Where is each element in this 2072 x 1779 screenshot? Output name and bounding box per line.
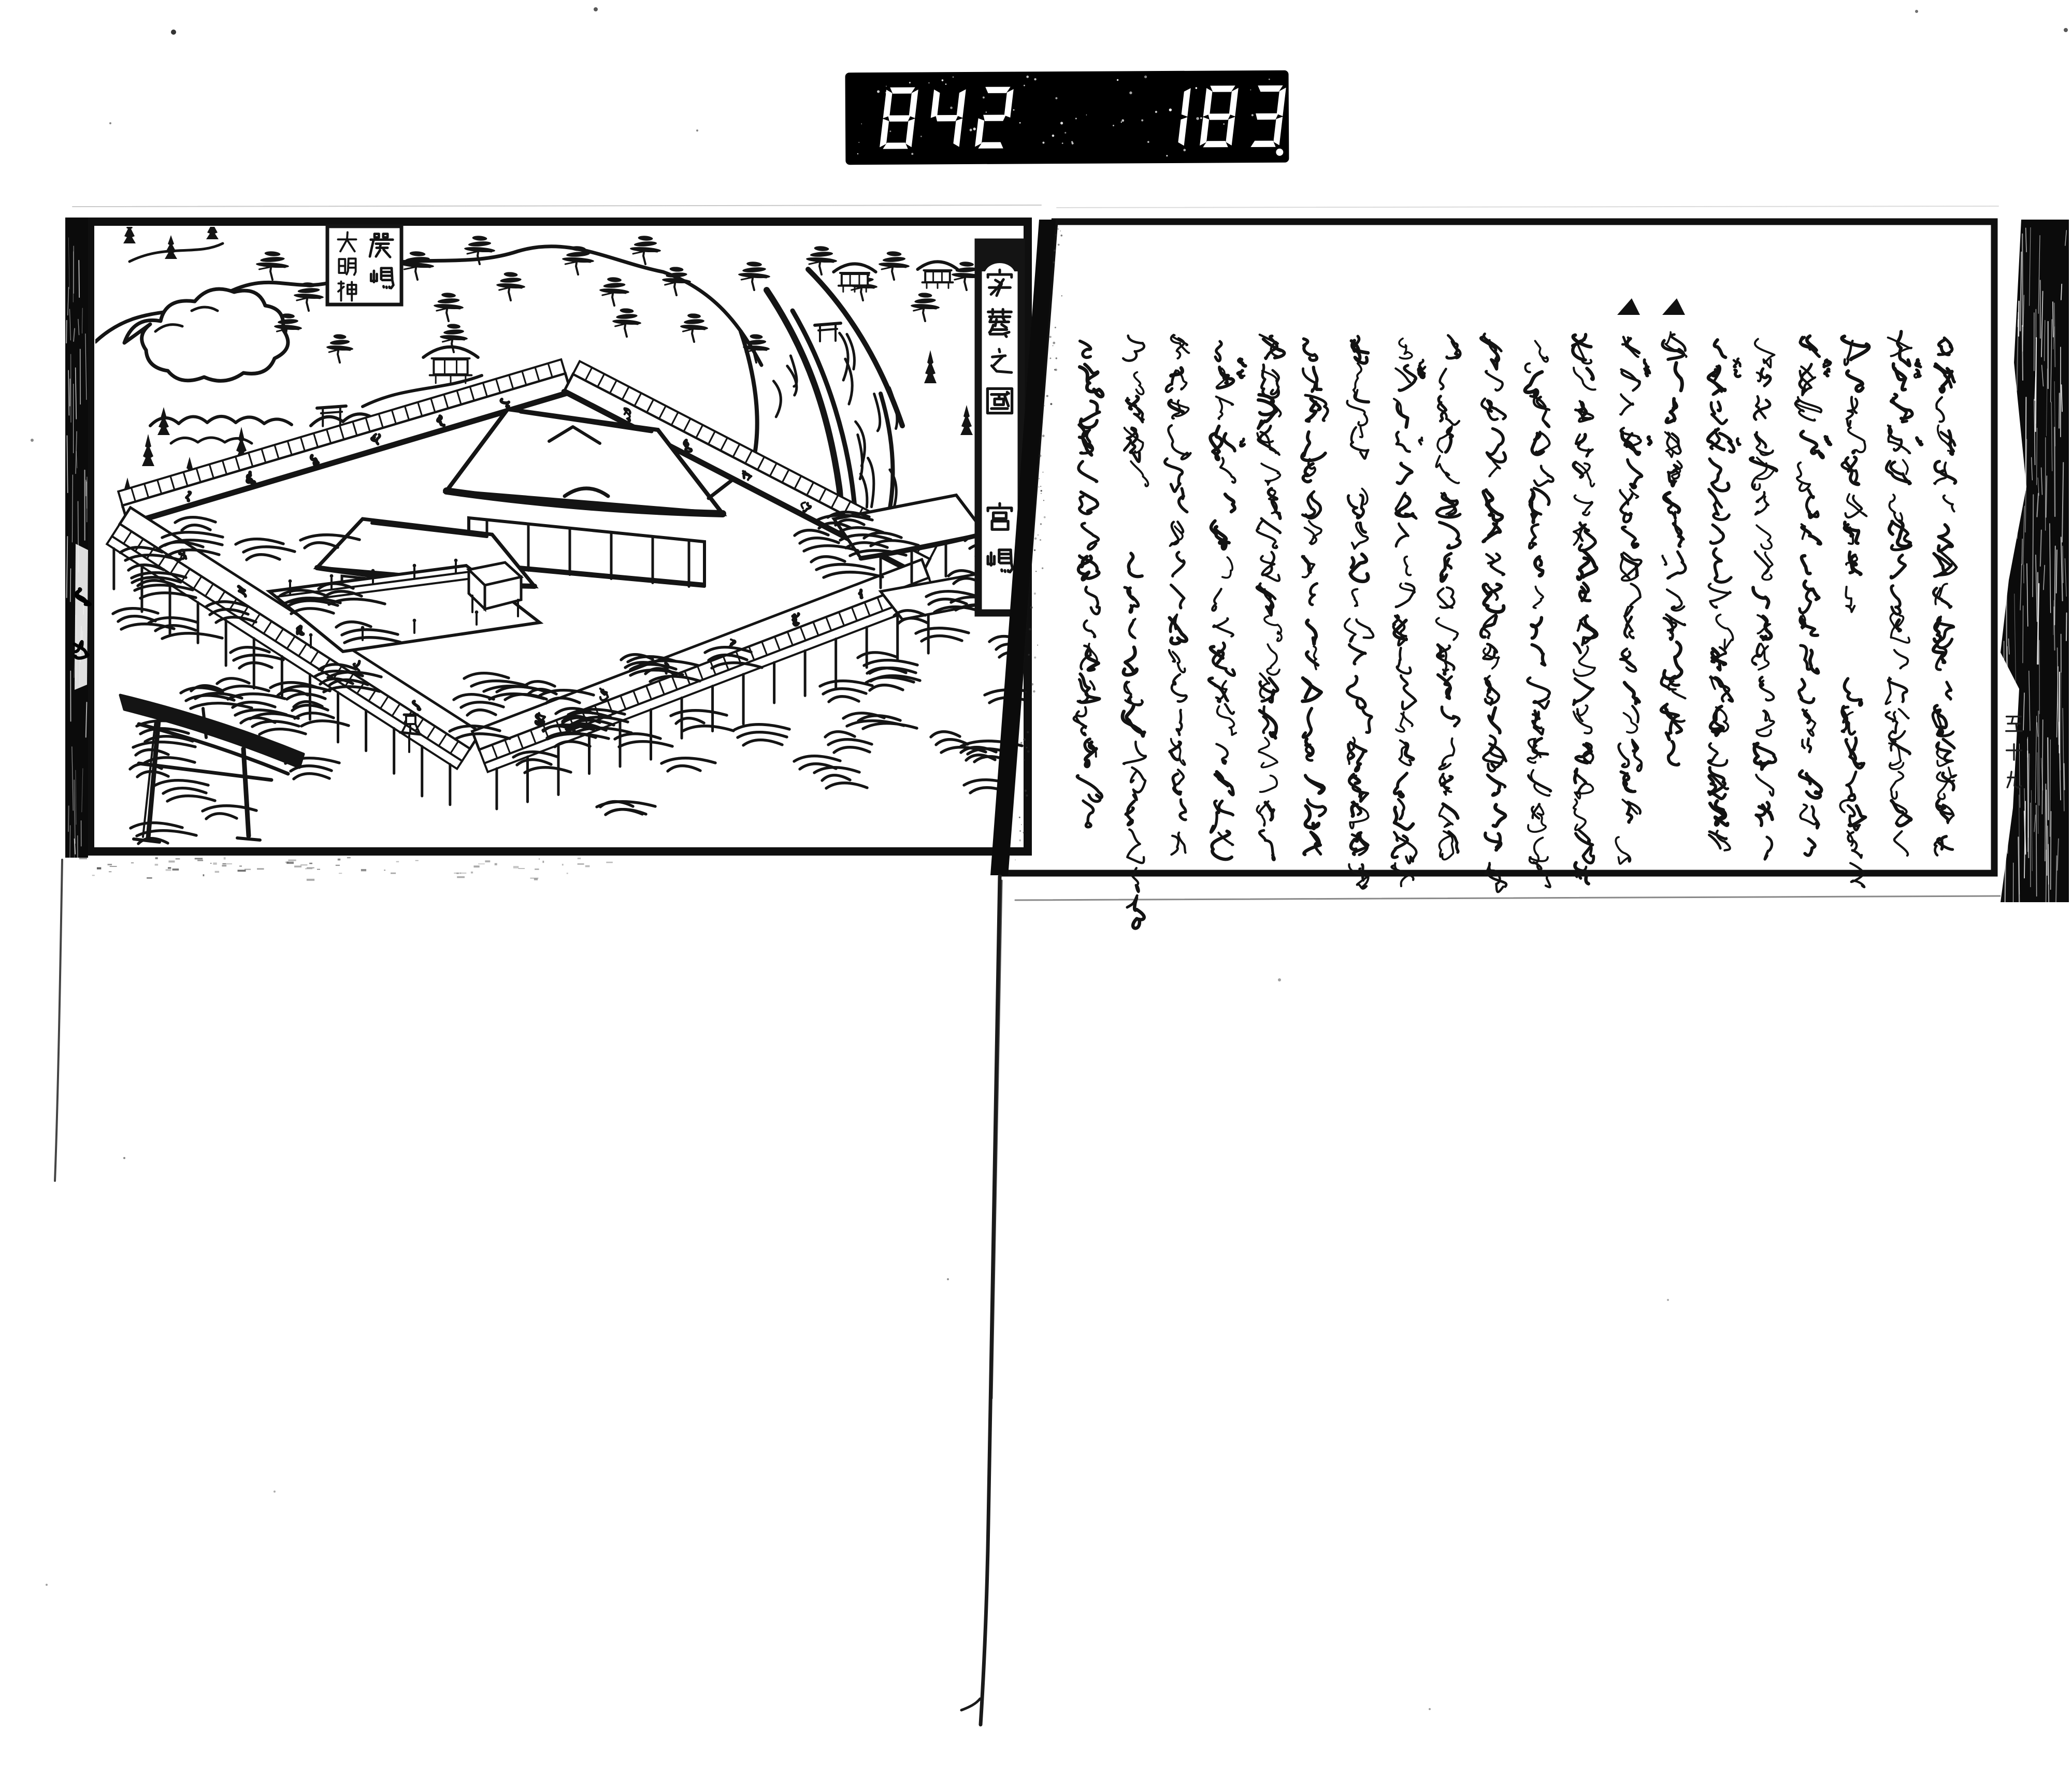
left-page-illustration <box>73 205 1045 851</box>
text-column <box>1481 334 1506 892</box>
clouds <box>124 289 288 381</box>
text-column <box>1840 336 1869 887</box>
fold-line <box>961 876 1002 1725</box>
text-column <box>1345 336 1373 889</box>
text-column <box>1795 336 1831 856</box>
text-column <box>1661 298 1687 765</box>
text-column <box>1525 341 1553 887</box>
fore-edge-strip <box>2001 220 2069 944</box>
text-column <box>1302 339 1328 855</box>
text-column <box>1257 335 1284 860</box>
deity-cartouche <box>327 226 401 305</box>
text-column <box>1750 339 1777 859</box>
text-column <box>1886 331 1922 856</box>
scanned-page: 842 183 嚴嶋大明神 安藝之國 宮嶋 五十九 乃上同年十二月廿八日寳殿ゑつ… <box>0 0 2072 1779</box>
illustration-scene <box>95 216 1045 844</box>
text-column <box>1165 335 1191 855</box>
text-column <box>1573 335 1597 884</box>
text-column <box>1074 341 1103 827</box>
text-column <box>1933 338 1956 856</box>
great-torii <box>120 695 304 842</box>
text-column <box>1209 341 1245 859</box>
text-column <box>1616 298 1651 864</box>
film-counter <box>845 70 1289 165</box>
right-page-text <box>990 206 2069 944</box>
scan-canvas <box>0 0 2072 1779</box>
text-column <box>1391 339 1425 887</box>
text-columns <box>1074 298 1956 928</box>
text-column <box>1123 336 1148 928</box>
text-column <box>1436 336 1460 860</box>
text-column <box>1708 340 1740 850</box>
